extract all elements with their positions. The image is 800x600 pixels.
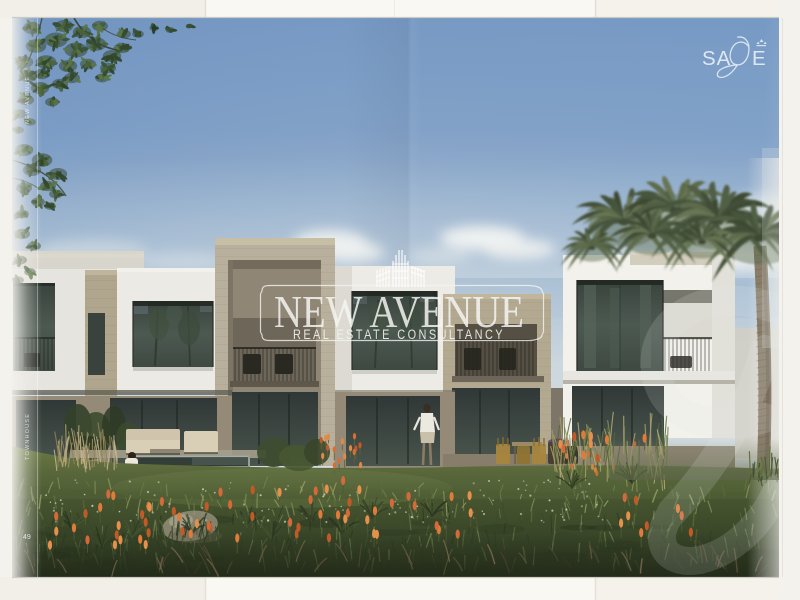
svg-text:NEW AVENUE: NEW AVENUE bbox=[25, 76, 31, 124]
svg-text:REAL ESTATE CONSULTANCY: REAL ESTATE CONSULTANCY bbox=[293, 327, 505, 342]
svg-text:TOWNHOUSE: TOWNHOUSE bbox=[25, 413, 31, 460]
svg-text:49: 49 bbox=[23, 534, 31, 541]
svg-text:E: E bbox=[752, 47, 766, 70]
